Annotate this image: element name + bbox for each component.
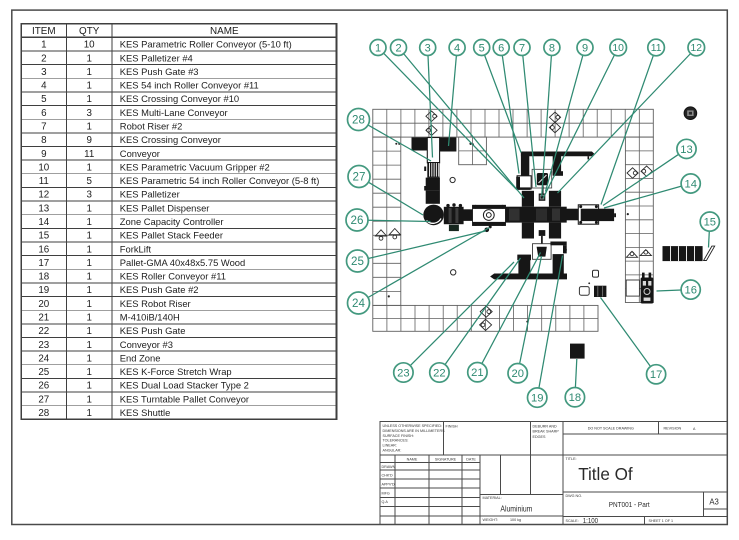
svg-text:NAME: NAME — [210, 26, 239, 37]
svg-text:21: 21 — [471, 367, 483, 379]
svg-text:DATE: DATE — [466, 457, 476, 461]
svg-text:14: 14 — [38, 217, 49, 228]
svg-text:3: 3 — [41, 67, 47, 78]
svg-text:DWG NO.: DWG NO. — [566, 494, 583, 498]
svg-text:1: 1 — [86, 231, 91, 242]
svg-text:EDGES: EDGES — [533, 435, 546, 439]
svg-text:1: 1 — [41, 40, 46, 51]
svg-text:APPV'D: APPV'D — [382, 483, 396, 487]
svg-text:A3: A3 — [709, 497, 719, 507]
svg-text:26: 26 — [38, 381, 49, 392]
svg-text:1: 1 — [86, 394, 91, 405]
svg-text:1: 1 — [86, 272, 91, 283]
svg-text:23: 23 — [397, 367, 409, 379]
svg-text:6: 6 — [498, 42, 504, 54]
svg-text:MATERIAL:: MATERIAL: — [483, 496, 502, 500]
svg-text:9: 9 — [41, 149, 46, 160]
svg-text:12: 12 — [691, 43, 703, 54]
svg-text:KES Robot Riser: KES Robot Riser — [120, 298, 191, 309]
svg-text:12: 12 — [38, 190, 49, 201]
svg-text:SURFACE FINISH:: SURFACE FINISH: — [383, 434, 415, 438]
svg-text:10: 10 — [38, 162, 49, 173]
svg-text:WEIGHT:: WEIGHT: — [483, 518, 498, 522]
svg-text:18: 18 — [38, 272, 49, 283]
svg-text:M-410iB/140H: M-410iB/140H — [120, 312, 180, 323]
svg-text:26: 26 — [351, 214, 364, 227]
svg-text:1: 1 — [86, 94, 91, 105]
svg-text:1: 1 — [86, 313, 91, 324]
svg-text:15: 15 — [704, 217, 716, 229]
svg-text:27: 27 — [38, 394, 49, 405]
svg-text:KES Roller Conveyor #11: KES Roller Conveyor #11 — [120, 271, 226, 282]
svg-text:PNT001 - Part: PNT001 - Part — [609, 500, 651, 509]
svg-text:10: 10 — [612, 43, 624, 54]
svg-text:27: 27 — [353, 171, 366, 184]
svg-text:10: 10 — [84, 40, 95, 51]
svg-text:1: 1 — [86, 81, 91, 92]
svg-text:5: 5 — [86, 176, 92, 187]
svg-text:1: 1 — [86, 381, 91, 392]
svg-text:1: 1 — [375, 42, 381, 54]
svg-text:11: 11 — [84, 149, 94, 160]
svg-text:BREAK SHARP: BREAK SHARP — [533, 430, 560, 434]
svg-text:KES Parametric Roller Conveyor: KES Parametric Roller Conveyor (5-10 ft) — [120, 39, 292, 50]
svg-text:NAME: NAME — [407, 457, 418, 461]
svg-text:1: 1 — [86, 353, 91, 364]
svg-text:18: 18 — [569, 392, 581, 404]
svg-text:QTY: QTY — [79, 26, 100, 37]
svg-text:22: 22 — [38, 326, 49, 337]
svg-text:13: 13 — [38, 203, 49, 214]
svg-text:KES Parametric 54 inch Roller: KES Parametric 54 inch Roller Conveyor (… — [120, 175, 320, 186]
svg-text:1: 1 — [86, 203, 91, 214]
svg-text:25: 25 — [38, 367, 49, 378]
svg-text:1: 1 — [86, 162, 91, 173]
svg-text:LINEAR:: LINEAR: — [383, 444, 397, 448]
svg-text:KES Pallet Stack Feeder: KES Pallet Stack Feeder — [120, 230, 223, 241]
svg-text:DEBURR AND: DEBURR AND — [533, 425, 558, 429]
svg-text:DRAWN: DRAWN — [382, 465, 396, 469]
svg-text:KES Shuttle: KES Shuttle — [120, 407, 171, 418]
svg-text:KES Turntable Pallet Conveyor: KES Turntable Pallet Conveyor — [120, 393, 249, 404]
svg-text:1: 1 — [86, 244, 91, 255]
svg-text:8: 8 — [549, 42, 555, 54]
svg-text:11: 11 — [39, 176, 49, 187]
svg-text:1:100: 1:100 — [583, 518, 598, 525]
svg-text:REVISION: REVISION — [664, 427, 682, 431]
svg-text:KES Push Gate #2: KES Push Gate #2 — [120, 284, 199, 295]
svg-text:17: 17 — [38, 258, 49, 269]
svg-text:KES Push Gate #3: KES Push Gate #3 — [120, 66, 199, 77]
svg-text:13: 13 — [680, 144, 692, 156]
svg-text:22: 22 — [433, 367, 445, 379]
svg-text:20: 20 — [511, 368, 523, 380]
svg-text:15: 15 — [38, 231, 49, 242]
svg-text:ForkLift: ForkLift — [120, 243, 152, 254]
svg-text:KES Crossing Conveyor: KES Crossing Conveyor — [120, 134, 221, 145]
svg-text:DIMENSIONS ARE IN MILLIMETERS: DIMENSIONS ARE IN MILLIMETERS — [383, 429, 446, 433]
svg-text:KES Push Gate: KES Push Gate — [120, 325, 186, 336]
svg-text:KES Multi-Lane Conveyor: KES Multi-Lane Conveyor — [120, 107, 228, 118]
svg-text:TOLERANCES:: TOLERANCES: — [383, 439, 409, 443]
svg-text:Conveyor #3: Conveyor #3 — [120, 339, 173, 350]
svg-text:9: 9 — [582, 42, 588, 54]
svg-text:8: 8 — [41, 135, 47, 146]
svg-text:6: 6 — [41, 108, 47, 119]
svg-text:16: 16 — [684, 285, 696, 297]
svg-text:Zone Capacity Controller: Zone Capacity Controller — [120, 216, 224, 227]
svg-text:SCALE:: SCALE: — [566, 519, 579, 523]
svg-text:KES 54 inch Roller Conveyor #1: KES 54 inch Roller Conveyor #11 — [120, 80, 259, 91]
svg-text:24: 24 — [352, 297, 365, 310]
svg-text:UNLESS OTHERWISE SPECIFIED:: UNLESS OTHERWISE SPECIFIED: — [383, 424, 443, 428]
svg-text:7: 7 — [41, 122, 46, 133]
svg-text:KES Palletizer #4: KES Palletizer #4 — [120, 52, 193, 63]
svg-text:3: 3 — [86, 108, 92, 119]
svg-text:24: 24 — [38, 353, 49, 364]
svg-text:25: 25 — [351, 255, 364, 268]
svg-text:FINISH: FINISH — [446, 425, 458, 429]
svg-text:5: 5 — [479, 42, 485, 54]
svg-text:Q.A: Q.A — [382, 500, 389, 504]
svg-text:7: 7 — [519, 42, 525, 54]
svg-text:5: 5 — [41, 94, 47, 105]
svg-text:Conveyor: Conveyor — [120, 148, 160, 159]
svg-text:9: 9 — [86, 135, 91, 146]
svg-text:100 kg: 100 kg — [510, 518, 521, 522]
svg-text:4: 4 — [454, 42, 460, 54]
svg-text:KES Dual Load Stacker Type 2: KES Dual Load Stacker Type 2 — [120, 380, 249, 391]
svg-text:11: 11 — [651, 43, 662, 54]
svg-text:1: 1 — [86, 299, 91, 310]
svg-text:20: 20 — [38, 299, 49, 310]
svg-text:1: 1 — [86, 53, 91, 64]
svg-text:Pallet-GMA 40x48x5.75 Wood: Pallet-GMA 40x48x5.75 Wood — [120, 257, 245, 268]
svg-text:KES K-Force Stretch Wrap: KES K-Force Stretch Wrap — [120, 366, 232, 377]
svg-text:28: 28 — [352, 114, 365, 127]
svg-text:1: 1 — [86, 408, 91, 419]
svg-text:ITEM: ITEM — [32, 26, 56, 37]
svg-text:Aluminium: Aluminium — [500, 503, 532, 513]
svg-text:KES Pallet Dispenser: KES Pallet Dispenser — [120, 202, 210, 213]
svg-text:1: 1 — [86, 67, 91, 78]
svg-text:17: 17 — [650, 369, 662, 381]
svg-text:23: 23 — [38, 340, 49, 351]
svg-text:MFG: MFG — [382, 492, 390, 496]
svg-text:KES Palletizer: KES Palletizer — [120, 189, 180, 200]
svg-text:SHEET 1 OF 1: SHEET 1 OF 1 — [649, 519, 674, 523]
svg-text:19: 19 — [531, 393, 543, 405]
svg-text:Title Of: Title Of — [578, 464, 633, 484]
svg-text:28: 28 — [38, 408, 49, 419]
svg-text:1: 1 — [86, 340, 91, 351]
svg-text:Robot Riser #2: Robot Riser #2 — [120, 121, 183, 132]
svg-text:1: 1 — [86, 122, 91, 133]
svg-text:DO NOT SCALE DRAWING: DO NOT SCALE DRAWING — [588, 427, 634, 431]
svg-text:KES Parametric Vacuum Gripper: KES Parametric Vacuum Gripper #2 — [120, 161, 270, 172]
svg-text:2: 2 — [41, 53, 46, 64]
svg-text:4: 4 — [41, 81, 47, 92]
svg-text:1: 1 — [86, 285, 91, 296]
svg-text:1: 1 — [86, 367, 91, 378]
svg-text:ANGULAR:: ANGULAR: — [383, 449, 402, 453]
svg-text:3: 3 — [425, 42, 431, 54]
svg-text:21: 21 — [38, 313, 49, 324]
svg-text:End Zone: End Zone — [120, 352, 161, 363]
svg-text:1: 1 — [86, 217, 91, 228]
svg-text:1: 1 — [86, 326, 91, 337]
svg-text:TITLE:: TITLE: — [566, 457, 577, 461]
svg-text:CHK'D: CHK'D — [382, 474, 393, 478]
svg-text:16: 16 — [38, 244, 49, 255]
svg-text:SIGNATURE: SIGNATURE — [435, 457, 457, 461]
svg-text:2: 2 — [395, 42, 401, 54]
svg-text:3: 3 — [86, 190, 92, 201]
svg-text:KES Crossing Conveyor #10: KES Crossing Conveyor #10 — [120, 93, 239, 104]
svg-text:14: 14 — [684, 178, 696, 190]
svg-text:1: 1 — [86, 258, 91, 269]
svg-text:19: 19 — [38, 285, 49, 296]
